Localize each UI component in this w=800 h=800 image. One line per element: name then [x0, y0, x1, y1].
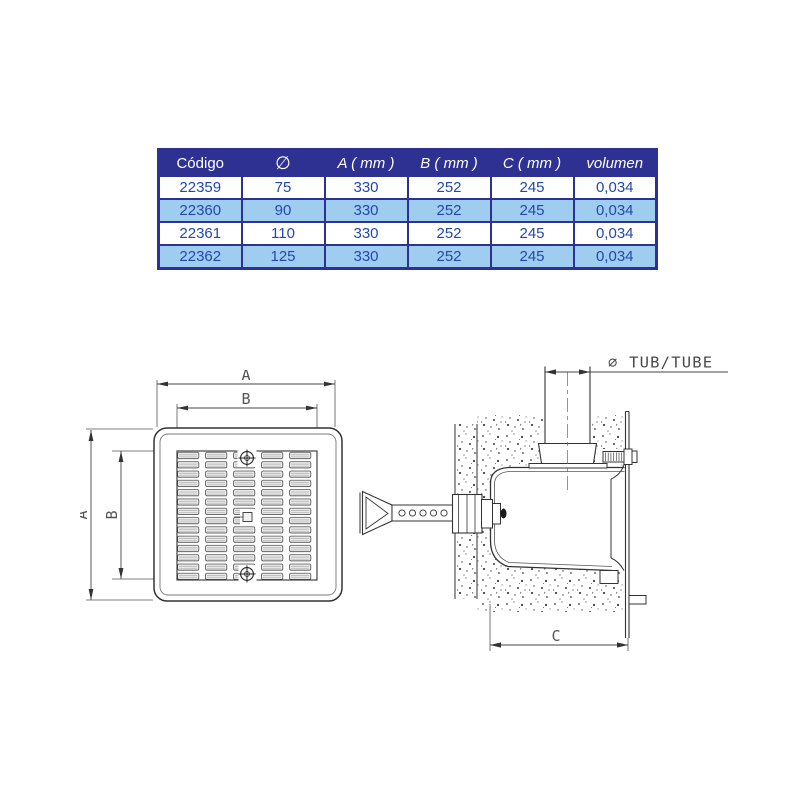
cell-volumen: 0,034	[574, 176, 657, 199]
cell-codigo: 22362	[159, 245, 242, 269]
header-b-mm: B ( mm )	[408, 150, 491, 177]
dimension-b-top: B	[177, 390, 317, 410]
header-diameter: ∅	[242, 150, 325, 177]
table-row: 22362 125 330 252 245 0,034	[159, 245, 657, 269]
header-a-mm: A ( mm )	[325, 150, 408, 177]
dim-label-b-top: B	[241, 390, 250, 408]
cell-codigo: 22361	[159, 222, 242, 245]
cell-c: 245	[491, 222, 574, 245]
cell-b: 252	[408, 176, 491, 199]
cell-codigo: 22360	[159, 199, 242, 222]
cell-diameter: 125	[242, 245, 325, 269]
cell-volumen: 0,034	[574, 245, 657, 269]
cell-diameter: 75	[242, 176, 325, 199]
table-row: 22361 110 330 252 245 0,034	[159, 222, 657, 245]
cell-a: 330	[325, 222, 408, 245]
fixing-bolt	[603, 449, 637, 465]
cell-c: 245	[491, 176, 574, 199]
cell-codigo: 22359	[159, 176, 242, 199]
body-foot	[600, 571, 618, 584]
header-volumen: volumen	[574, 150, 657, 177]
table-row: 22360 90 330 252 245 0,034	[159, 199, 657, 222]
spec-table: Código ∅ A ( mm ) B ( mm ) C ( mm ) volu…	[157, 148, 658, 270]
header-c-mm: C ( mm )	[491, 150, 574, 177]
motor-shaft-tip	[501, 509, 507, 519]
dim-label-a-left: A	[80, 510, 91, 519]
cell-a: 330	[325, 199, 408, 222]
table-header: Código ∅ A ( mm ) B ( mm ) C ( mm ) volu…	[159, 150, 657, 177]
dimension-a-left: A	[80, 430, 93, 600]
dim-label-a-top: A	[241, 370, 250, 384]
cell-a: 330	[325, 176, 408, 199]
side-view-drawing: ∅ TUB/TUBE C	[355, 345, 750, 660]
grille-bottom-flange	[629, 596, 646, 605]
dim-label-b-left: B	[103, 510, 121, 519]
cell-b: 252	[408, 245, 491, 269]
cell-a: 330	[325, 245, 408, 269]
grille-front	[154, 428, 342, 601]
dimension-b-left: B	[103, 451, 123, 579]
header-codigo: Código	[159, 150, 242, 177]
front-view-drawing: A B A B	[80, 370, 352, 612]
cell-diameter: 90	[242, 199, 325, 222]
cell-b: 252	[408, 222, 491, 245]
cell-diameter: 110	[242, 222, 325, 245]
table-row: 22359 75 330 252 245 0,034	[159, 176, 657, 199]
dimensions-table: Código ∅ A ( mm ) B ( mm ) C ( mm ) volu…	[157, 148, 658, 270]
dimension-a-top: A	[157, 370, 335, 386]
tube-dim-label: ∅ TUB/TUBE	[608, 354, 713, 372]
cell-volumen: 0,034	[574, 222, 657, 245]
cell-c: 245	[491, 199, 574, 222]
cell-volumen: 0,034	[574, 199, 657, 222]
cell-c: 245	[491, 245, 574, 269]
fan-body	[491, 463, 625, 584]
cell-b: 252	[408, 199, 491, 222]
dim-label-c: C	[551, 627, 560, 645]
